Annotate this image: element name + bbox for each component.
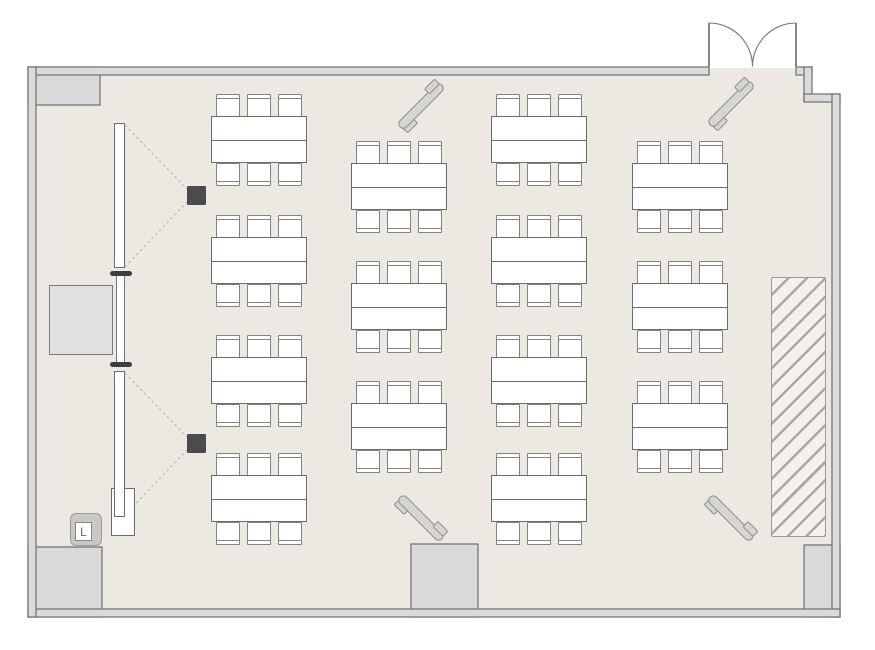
projector-icon <box>187 186 206 205</box>
screen-cap-bottom <box>110 362 132 367</box>
table <box>491 237 587 284</box>
table <box>211 116 307 163</box>
table <box>632 403 728 450</box>
table <box>351 403 447 450</box>
table <box>491 357 587 404</box>
speaker-icon <box>706 79 755 128</box>
speaker-icon <box>396 493 445 542</box>
light-switch-box: L <box>70 513 102 546</box>
reserved-hatched-area <box>771 277 826 537</box>
screen-rail <box>116 275 125 364</box>
speaker-bar <box>396 493 445 542</box>
speaker-icon <box>396 81 445 130</box>
table <box>491 116 587 163</box>
projector-icon <box>187 434 206 453</box>
speaker-icon <box>706 493 755 542</box>
screen-cap-top <box>110 271 132 276</box>
furniture-layer: L <box>0 0 875 650</box>
table <box>351 163 447 210</box>
wall-screen-bottom <box>114 371 125 517</box>
table <box>632 163 728 210</box>
speaker-bar <box>706 79 755 128</box>
table <box>632 283 728 330</box>
table <box>211 475 307 522</box>
table <box>211 357 307 404</box>
table <box>351 283 447 330</box>
light-switch-label: L <box>75 522 92 541</box>
speaker-bar <box>396 81 445 130</box>
floor-plan: L <box>0 0 875 650</box>
cabinet <box>49 285 113 355</box>
wall-screen-top <box>114 123 125 268</box>
table <box>491 475 587 522</box>
table <box>211 237 307 284</box>
speaker-bar <box>706 493 755 542</box>
